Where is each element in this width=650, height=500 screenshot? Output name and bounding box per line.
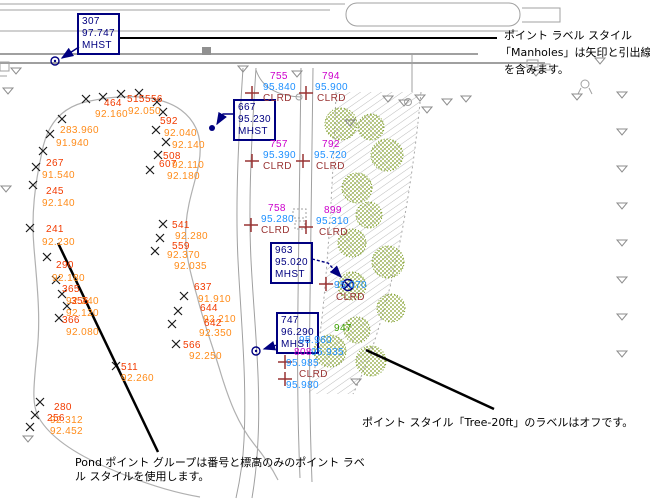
cad-drawing-canvas: 307 97.747 MHST 667 95.230 MHST 963 95.0… bbox=[0, 0, 650, 500]
point-number: 963 bbox=[275, 245, 308, 257]
point-elevation-label: 92.080 bbox=[66, 328, 99, 338]
point-number-label: 511 bbox=[121, 363, 138, 373]
point-number-label: 366 bbox=[62, 316, 80, 326]
point-elevation-label: 95.720 bbox=[314, 151, 347, 161]
point-elevation: 97.747 bbox=[82, 28, 115, 40]
point-number-label: 280 bbox=[54, 403, 72, 413]
point-elevation: 95.020 bbox=[275, 257, 308, 269]
point-elevation-label: 95.980 bbox=[286, 381, 319, 391]
point-elevation-label: 95.900 bbox=[315, 83, 348, 93]
point-desc-label: CLRD bbox=[319, 228, 348, 238]
point-elevation-label: 92.035 bbox=[174, 262, 207, 272]
point-elevation-label: 92.250 bbox=[189, 352, 222, 362]
point-desc-label: CLRD bbox=[263, 162, 292, 172]
point-elevation-label: 283.960 bbox=[60, 126, 99, 136]
point-desc-label: CLRD bbox=[317, 94, 346, 104]
point-elevation-label: 92.350 bbox=[199, 329, 232, 339]
point-number-label: 755 bbox=[270, 72, 288, 82]
point-desc-label: CLRD bbox=[261, 226, 290, 236]
point-elevation-label: 92.140 bbox=[42, 199, 75, 209]
point-number-label: 644 bbox=[200, 304, 218, 314]
point-number-label: 757 bbox=[270, 140, 288, 150]
point-description: MHST bbox=[238, 126, 271, 138]
manhole-label-667: 667 95.230 MHST bbox=[233, 99, 276, 141]
point-number-label: 267 bbox=[46, 159, 64, 169]
point-number-label: 794 bbox=[322, 72, 340, 82]
point-elevation-label: 95.840 bbox=[263, 83, 296, 93]
manholes-note-line3: を含みます。 bbox=[504, 62, 569, 78]
point-number-label: 256 bbox=[47, 414, 65, 424]
point-elevation-label: 95.070 bbox=[334, 281, 367, 291]
point-number-label: 556 bbox=[145, 95, 163, 105]
point-elevation-label: 92.050 bbox=[128, 107, 161, 117]
point-desc-label: CLRD bbox=[336, 293, 365, 303]
point-elevation-label: 92.160 bbox=[95, 110, 128, 120]
point-elevation-label: 92.260 bbox=[121, 374, 154, 384]
point-marker-icons bbox=[26, 89, 188, 431]
point-elevation-label: 92.452 bbox=[50, 427, 83, 437]
point-number-label: 365 bbox=[62, 285, 80, 295]
point-number-label: 758 bbox=[268, 204, 286, 214]
manhole-label-307: 307 97.747 MHST bbox=[77, 13, 120, 55]
point-number-label: 541 bbox=[172, 221, 190, 231]
manholes-note-leader-line bbox=[119, 37, 497, 39]
point-elevation-label: 92.140 bbox=[172, 141, 205, 151]
point-elevation-label: 95.935 bbox=[311, 348, 344, 358]
point-number-label: 356 bbox=[71, 297, 89, 307]
point-description: MHST bbox=[275, 269, 308, 281]
point-number-label: 290 bbox=[56, 261, 74, 271]
point-elevation-label: 92.040 bbox=[164, 129, 197, 139]
point-desc-label: CLRD bbox=[263, 94, 292, 104]
point-desc-label: CLRD bbox=[316, 162, 345, 172]
point-elevation-label: 92.370 bbox=[167, 251, 200, 261]
tree-style-note: ポイント スタイル「Tree-20ft」のラベルはオフです。 bbox=[362, 415, 633, 431]
point-elevation-label: 95.985 bbox=[286, 359, 319, 369]
point-number-label: 464 bbox=[104, 99, 122, 109]
point-number-label: 899 bbox=[324, 206, 342, 216]
point-elevation-label: 92.110 bbox=[172, 161, 204, 171]
point-number-label: 515 bbox=[127, 95, 145, 105]
point-number-label: 808 bbox=[294, 348, 312, 358]
point-elevation-label: 92.230 bbox=[42, 238, 75, 248]
point-number-label: 792 bbox=[322, 140, 340, 150]
point-elevation-label: 95.390 bbox=[263, 151, 296, 161]
manholes-note-line1: ポイント ラベル スタイル bbox=[504, 28, 632, 44]
point-number-label: 245 bbox=[46, 187, 64, 197]
point-number-label: 566 bbox=[183, 341, 201, 351]
point-elevation-label: 92.180 bbox=[167, 172, 200, 182]
point-elevation-label: 95.960 bbox=[299, 336, 332, 346]
point-number-label: 241 bbox=[46, 225, 64, 235]
point-elevation-label: 95.310 bbox=[316, 217, 349, 227]
manhole-label-963: 963 95.020 MHST bbox=[270, 242, 313, 284]
point-number-label: 637 bbox=[194, 283, 212, 293]
point-elevation: 95.230 bbox=[238, 114, 271, 126]
manholes-note-line2: 「Manholes」は矢印と引出線 bbox=[500, 45, 650, 61]
point-description: MHST bbox=[82, 40, 115, 52]
point-number-label: 947 bbox=[334, 324, 352, 334]
pond-note-line2: ル スタイルを使用します。 bbox=[75, 469, 209, 485]
point-elevation-label: 91.940 bbox=[56, 139, 89, 149]
point-elevation-label: 95.280 bbox=[261, 215, 294, 225]
point-number: 747 bbox=[281, 315, 314, 327]
point-number: 307 bbox=[82, 16, 115, 28]
point-number-label: 592 bbox=[160, 117, 178, 127]
point-elevation-label: 91.540 bbox=[42, 171, 75, 181]
point-elevation-label: 92.180 bbox=[52, 274, 85, 284]
point-desc-label: CLRD bbox=[299, 370, 328, 380]
